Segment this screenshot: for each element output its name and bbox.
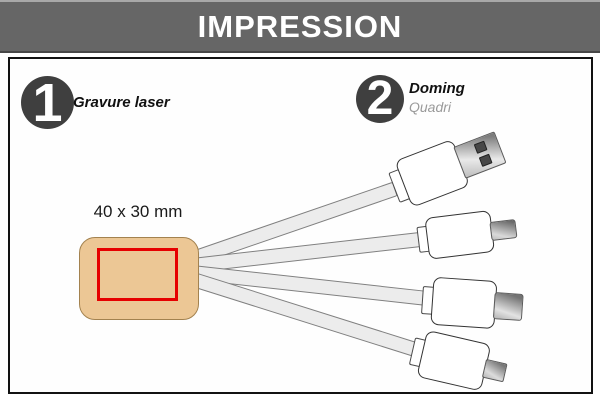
connector-housing [424, 210, 495, 260]
usb-pin-hole [479, 154, 493, 167]
usb-c-plug-tip [493, 292, 524, 321]
micro-usb-connector-icon [407, 328, 511, 396]
usb-pin-hole [474, 141, 488, 154]
print-area-dimensions: 40 x 30 mm [69, 202, 207, 222]
lightning-plug-tip [489, 219, 517, 241]
connector-housing [416, 330, 491, 392]
impression-panel: IMPRESSION 1 Gravure laser 2 Doming Quad… [0, 0, 600, 400]
step-1-number: 1 [32, 76, 62, 130]
step-1-badge: 1 [21, 76, 74, 129]
print-area-outline [97, 248, 178, 301]
step-2-number: 2 [367, 75, 394, 123]
page-title: IMPRESSION [198, 9, 403, 45]
step-2-sublabel: Quadri [409, 99, 451, 115]
usb-a-connector-icon [385, 124, 509, 212]
header-bar: IMPRESSION [0, 0, 600, 53]
content-box: 1 Gravure laser 2 Doming Quadri 40 x 30 … [8, 57, 593, 394]
lightning-connector-icon [415, 207, 518, 261]
connector-housing [430, 277, 497, 329]
micro-usb-plug-tip [482, 358, 508, 381]
step-1-label: Gravure laser [73, 94, 170, 111]
cable-hub-body [79, 237, 199, 320]
step-2-label: Doming [409, 80, 465, 97]
step-2-badge: 2 [356, 75, 404, 123]
usb-c-connector-icon [420, 276, 524, 331]
